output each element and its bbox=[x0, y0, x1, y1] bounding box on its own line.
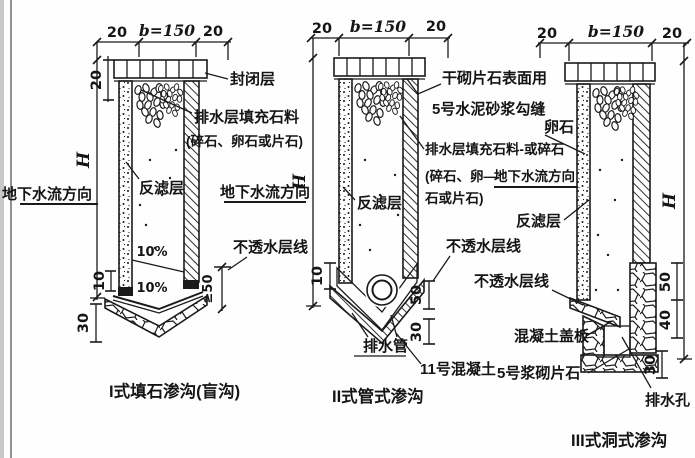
type1-filter-wall bbox=[119, 81, 132, 288]
type2-label-drain-pipe: 排水管 bbox=[363, 337, 408, 355]
type1-dim-top-left: 20 bbox=[107, 25, 127, 41]
type3-interior-dots bbox=[595, 159, 623, 291]
type3-right-masonry-column bbox=[630, 263, 656, 353]
type2-dim-top-right: 20 bbox=[426, 19, 446, 35]
type3-label-flow-direction: 地下水流方向 bbox=[494, 168, 575, 184]
type2-dim-base: 30 bbox=[409, 322, 425, 342]
scanned-diagram-page: 20 b=150 20 20 H 10 30 ≥50 10% 10% 封闭层 排… bbox=[0, 0, 695, 458]
type2-label-flow-direction: 地下水流方向 bbox=[220, 183, 310, 201]
type3-dim-top-left: 20 bbox=[537, 26, 557, 42]
type3-filter-wall bbox=[577, 84, 590, 300]
type3-dim-upper: 50 bbox=[658, 272, 674, 292]
type1-dim-base: 30 bbox=[76, 313, 92, 333]
type3-label-masonry: 5号浆砌片石 bbox=[497, 364, 580, 382]
type3-dim-middle: 40 bbox=[658, 310, 674, 330]
type1-label-fill-line1: 排水层填充石料 bbox=[194, 108, 299, 126]
type2-label-impermeable-line: 不透水层线 bbox=[446, 237, 521, 255]
type2-label-fill-line2: (碎石、卵— bbox=[425, 168, 497, 184]
type1-left-footing bbox=[118, 287, 133, 296]
type1-caption: I式填石渗沟(盲沟) bbox=[109, 381, 240, 401]
type2-label-fill-line1: 排水层填充石料-或碎石 bbox=[425, 141, 565, 157]
type2-masonry-wall bbox=[403, 79, 418, 278]
type3-dim-height: H bbox=[660, 192, 680, 210]
type1-dim-cap: 20 bbox=[89, 70, 105, 90]
type1-label-sealing-layer: 封闭层 bbox=[230, 70, 275, 88]
type2-label-fill-line3: 石或片石) bbox=[424, 190, 484, 206]
type1-slope-upper: 10% bbox=[136, 245, 167, 260]
type1-upper-slope-line bbox=[132, 260, 184, 272]
type1-label-filter-layer: 反滤层 bbox=[139, 179, 184, 197]
type3-label-cobble: 卵石 bbox=[544, 118, 574, 136]
type1-dim-footing: 10 bbox=[92, 271, 108, 291]
type3-label-cover-slab: 混凝土盖板 bbox=[514, 327, 590, 345]
type2-filter-wall bbox=[339, 79, 352, 283]
type2-label-cap-line2: 5号水泥砂浆勾缝 bbox=[432, 100, 545, 118]
type1-label-fill-line2: (碎石、卵石或片石) bbox=[186, 133, 303, 149]
seepage-ditch-diagram-canvas: 20 b=150 20 20 H 10 30 ≥50 10% 10% 封闭层 排… bbox=[0, 0, 695, 458]
type1-dim-top-right: 20 bbox=[203, 24, 223, 40]
type2-dim-top-left: 20 bbox=[312, 21, 332, 37]
type2-label-filter-layer: 反滤层 bbox=[357, 194, 402, 212]
type2-dim-depth: 50 bbox=[409, 285, 425, 305]
type1-slope-lower: 10% bbox=[136, 281, 167, 296]
type3-dim-width: b=150 bbox=[588, 22, 644, 41]
type1-dim-width: b=150 bbox=[139, 21, 195, 40]
type2-dim-width: b=150 bbox=[350, 17, 406, 36]
type2-label-cap-line1: 干砌片石表面用 bbox=[442, 69, 547, 87]
type1-label-impermeable-line: 不透水层线 bbox=[233, 238, 308, 256]
type1-dim-embed: ≥50 bbox=[201, 275, 216, 304]
type3-label-drain-hole: 排水孔 bbox=[645, 391, 690, 409]
type3-dim-lower: 30 bbox=[643, 355, 659, 375]
type2-dim-footing: 10 bbox=[310, 266, 326, 286]
type1-interior-dots bbox=[139, 149, 177, 249]
type3-dim-top-right: 20 bbox=[662, 26, 682, 42]
type2-label-concrete: 11号混凝土 bbox=[420, 360, 496, 378]
type3-caption: III式洞式渗沟 bbox=[571, 430, 667, 450]
type1-dim-height: H bbox=[74, 151, 94, 169]
type1-leader-lines bbox=[20, 73, 247, 270]
type3-label-impermeable-line: 不透水层线 bbox=[474, 272, 549, 290]
type3-label-filter-layer: 反滤层 bbox=[516, 212, 561, 230]
type1-rock-fill-seep-ditch: 20 b=150 20 20 H 10 30 ≥50 10% 10% 封闭层 排… bbox=[2, 21, 308, 401]
type3-drain-hole bbox=[604, 326, 630, 357]
type1-label-flow-direction: 地下水流方向 bbox=[2, 185, 92, 203]
type2-caption: II式管式渗沟 bbox=[332, 386, 424, 406]
page-edge bbox=[0, 0, 11, 458]
type1-right-footing bbox=[183, 280, 199, 289]
